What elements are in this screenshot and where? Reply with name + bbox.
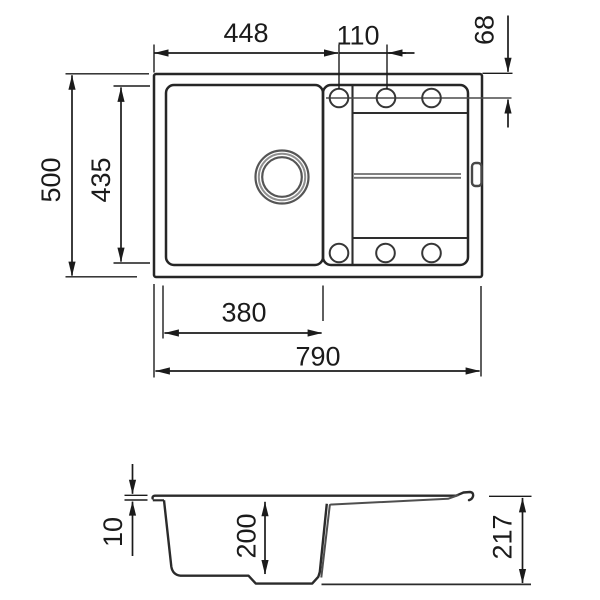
faucet-hole bbox=[330, 244, 349, 263]
section-drainboard-underside bbox=[321, 495, 458, 578]
dim-label-10: 10 bbox=[98, 517, 128, 547]
sink-bowl bbox=[166, 85, 323, 265]
section-view: 10 200 217 bbox=[98, 464, 532, 584]
dim-label-68: 68 bbox=[470, 15, 500, 45]
overflow-handle bbox=[472, 163, 482, 186]
drain-hole-inner-ring bbox=[262, 157, 302, 197]
dim-label-217: 217 bbox=[488, 514, 518, 559]
dim-label-435: 435 bbox=[86, 157, 116, 202]
drawing-canvas: 448 110 68 500 435 380 790 bbox=[0, 0, 600, 600]
dim-label-448: 448 bbox=[223, 18, 268, 48]
sink-technical-drawing: 448 110 68 500 435 380 790 bbox=[0, 0, 600, 600]
dim-label-380: 380 bbox=[221, 298, 266, 328]
drain-hole-outer-ring bbox=[256, 151, 309, 204]
faucet-hole bbox=[376, 244, 395, 263]
dim-label-500: 500 bbox=[36, 157, 66, 202]
sink-outer-rim bbox=[154, 74, 482, 277]
drain-hole-middle-ring bbox=[259, 154, 305, 200]
faucet-hole bbox=[422, 244, 441, 263]
dim-label-200: 200 bbox=[232, 513, 262, 558]
dim-label-790: 790 bbox=[295, 342, 340, 372]
dim-label-110: 110 bbox=[336, 21, 379, 51]
top-view: 448 110 68 500 435 380 790 bbox=[36, 15, 513, 378]
